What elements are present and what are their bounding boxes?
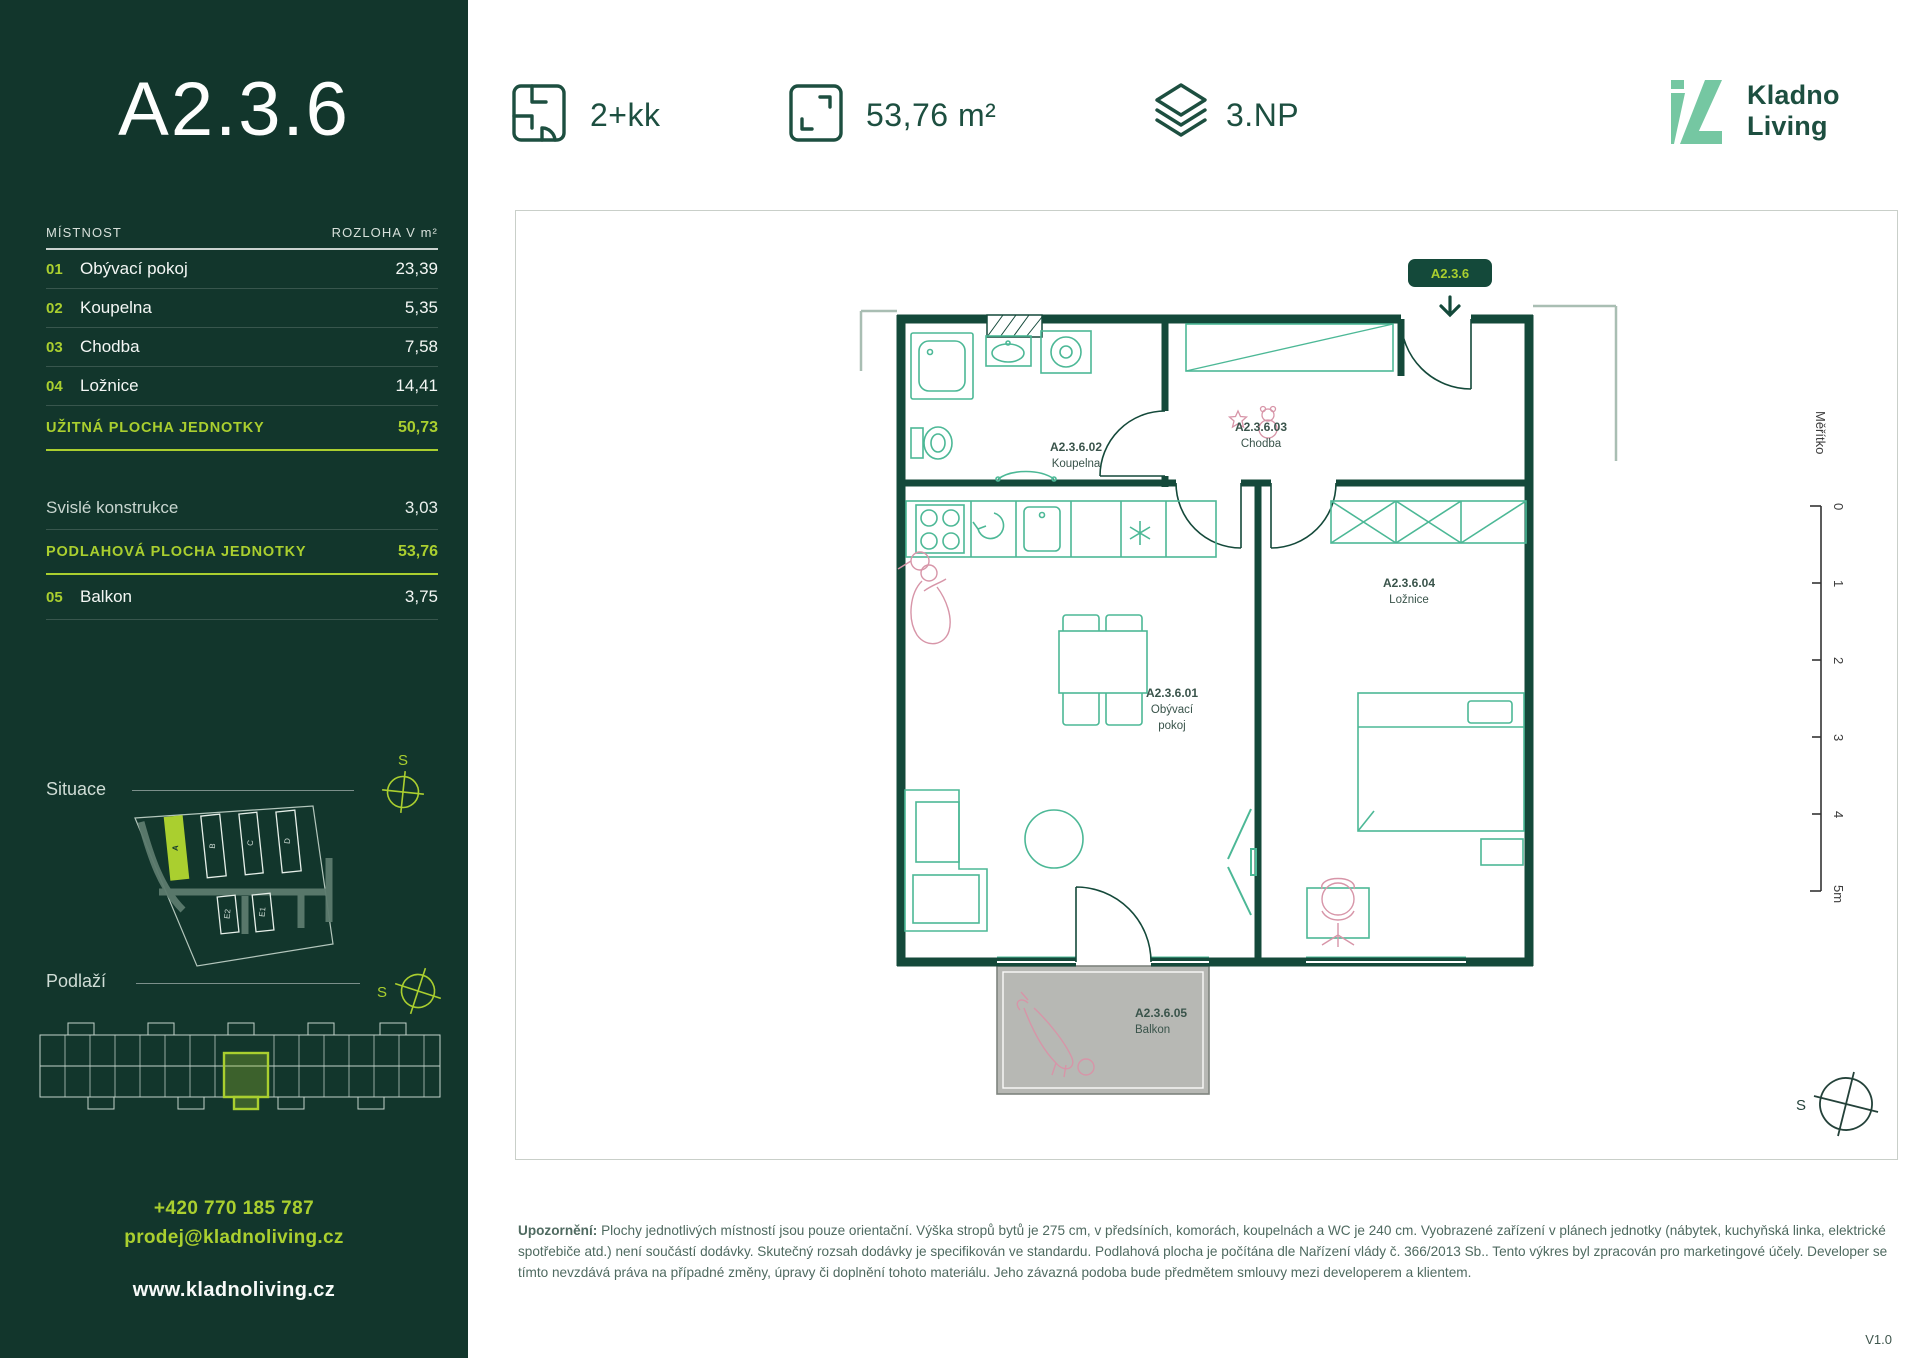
room-number: 04	[46, 378, 80, 395]
podlazi-divider	[136, 983, 360, 984]
svg-text:A2.3.6.05: A2.3.6.05	[1135, 1006, 1187, 1020]
room-table: MÍSTNOST ROZLOHA V m² 01 Obývací pokoj 2…	[46, 212, 438, 620]
svg-text:B: B	[208, 843, 218, 849]
room-table-header: MÍSTNOST ROZLOHA V m²	[46, 212, 438, 250]
usable-area-row: UŽITNÁ PLOCHA JEDNOTKY 50,73	[46, 406, 438, 451]
svg-text:E1: E1	[258, 906, 268, 917]
kitchen-counter	[906, 501, 1216, 557]
svg-text:A: A	[171, 844, 181, 851]
svg-text:C: C	[246, 839, 256, 846]
svg-text:E2: E2	[223, 908, 233, 919]
area-icon	[789, 84, 843, 142]
vertical-structures-value: 3,03	[405, 498, 438, 518]
svg-text:D: D	[283, 837, 293, 844]
sidebar: A2.3.6 MÍSTNOST ROZLOHA V m² 01 Obývací …	[0, 0, 468, 1358]
usable-area-label: UŽITNÁ PLOCHA JEDNOTKY	[46, 420, 398, 436]
svg-text:S: S	[1796, 1097, 1806, 1114]
room-number: 01	[46, 261, 80, 278]
balcony-area	[997, 966, 1209, 1094]
floor-icon	[1153, 82, 1209, 142]
room-name: Balkon	[80, 587, 405, 607]
svg-text:Balkon: Balkon	[1135, 1024, 1170, 1036]
situace-divider	[132, 790, 354, 791]
down-arrow-icon	[1441, 297, 1459, 315]
room-name: Koupelna	[80, 298, 405, 318]
floor-area-label: PODLAHOVÁ PLOCHA JEDNOTKY	[46, 544, 398, 560]
svg-text:Chodba: Chodba	[1241, 438, 1282, 450]
svg-text:A2.3.6.04: A2.3.6.04	[1383, 576, 1435, 590]
vertical-structures-label: Svislé konstrukce	[46, 498, 405, 518]
svg-text:2: 2	[1831, 657, 1846, 664]
svg-text:5m: 5m	[1831, 885, 1846, 903]
shaft-hatch	[987, 315, 1042, 337]
room-name: Obývací pokoj	[80, 259, 395, 279]
floor-plan-panel: A2.3.6.02 Koupelna A2.3.6.03 Chodba A2.3…	[515, 210, 1898, 1160]
desk-and-chair	[1307, 879, 1369, 948]
area-label: 53,76 m²	[866, 97, 996, 134]
neighbor-walls	[861, 306, 1616, 461]
floor-area-value: 53,76	[398, 543, 438, 561]
vertical-structures-row: Svislé konstrukce 3,03	[46, 487, 438, 530]
table-row: 01 Obývací pokoj 23,39	[46, 250, 438, 289]
usable-area-value: 50,73	[398, 419, 438, 437]
person-sketch	[898, 552, 950, 644]
room-name: Chodba	[80, 337, 405, 357]
room-area: 14,41	[395, 376, 438, 396]
svg-text:0: 0	[1831, 503, 1846, 510]
svg-text:Měřítko: Měřítko	[1813, 411, 1828, 454]
col-room-header: MÍSTNOST	[46, 225, 122, 240]
bed	[1358, 693, 1524, 865]
room-area: 23,39	[395, 259, 438, 279]
kladno-living-logo-icon	[1669, 80, 1725, 144]
room-number: 05	[46, 589, 80, 606]
svg-text:3: 3	[1831, 734, 1846, 741]
balcony-row: 05 Balkon 3,75	[46, 575, 438, 620]
hall-wardrobe	[1186, 324, 1393, 371]
highlighted-unit	[224, 1053, 268, 1097]
floor-plan-drawing: A2.3.6.02 Koupelna A2.3.6.03 Chodba A2.3…	[516, 211, 1899, 1161]
room-number: 03	[46, 339, 80, 356]
podlazi-heading: Podlaží	[46, 971, 106, 992]
podlazi-floor-diagram	[28, 1005, 458, 1140]
svg-text:A2.3.6: A2.3.6	[1431, 266, 1469, 281]
floor-label: 3.NP	[1226, 97, 1299, 134]
col-area-header: ROZLOHA V m²	[332, 225, 438, 240]
plan-compass-icon: S	[1796, 1064, 1886, 1144]
living-furniture	[905, 790, 1083, 931]
bedroom-wardrobe	[1331, 501, 1526, 543]
exterior-walls	[897, 315, 1533, 966]
svg-text:4: 4	[1831, 811, 1846, 818]
contact-block: +420 770 185 787 prodej@kladnoliving.cz …	[0, 1198, 468, 1302]
table-row: 02 Koupelna 5,35	[46, 289, 438, 328]
room-area: 7,58	[405, 337, 438, 357]
svg-text:Ložnice: Ložnice	[1389, 594, 1429, 606]
interior-walls	[897, 319, 1529, 962]
disclaimer-text: Upozornění: Plochy jednotlivých místnost…	[518, 1220, 1890, 1283]
table-row: 04 Ložnice 14,41	[46, 367, 438, 406]
floor-area-row: PODLAHOVÁ PLOCHA JEDNOTKY 53,76	[46, 530, 438, 575]
svg-text:A2.3.6.01: A2.3.6.01	[1146, 686, 1198, 700]
svg-text:1: 1	[1831, 580, 1846, 587]
svg-text:pokoj: pokoj	[1158, 720, 1186, 732]
svg-text:A2.3.6.03: A2.3.6.03	[1235, 420, 1287, 434]
room-number: 02	[46, 300, 80, 317]
layout-icon	[512, 84, 566, 142]
tv	[1228, 809, 1256, 915]
brand-name: Kladno Living	[1747, 80, 1840, 142]
room-area: 3,75	[405, 587, 438, 607]
scale-ruler: Měřítko 0 1 2 3 4 5m	[1810, 411, 1846, 903]
unit-chip: A2.3.6	[1408, 259, 1492, 315]
dining-set	[1059, 615, 1147, 725]
svg-text:A2.3.6.02: A2.3.6.02	[1050, 440, 1102, 454]
svg-text:Koupelna: Koupelna	[1052, 458, 1101, 470]
svg-text:S: S	[377, 984, 387, 1001]
room-area: 5,35	[405, 298, 438, 318]
website-link[interactable]: www.kladnoliving.cz	[0, 1279, 468, 1302]
layout-label: 2+kk	[590, 97, 660, 134]
situace-site-plan: A B C D E2 E1	[95, 800, 385, 978]
phone-link[interactable]: +420 770 185 787	[0, 1198, 468, 1220]
table-row: 03 Chodba 7,58	[46, 328, 438, 367]
svg-text:Obývací: Obývací	[1151, 704, 1194, 716]
svg-text:S: S	[398, 752, 408, 769]
version-label: V1.0	[1865, 1332, 1892, 1347]
unit-code-title: A2.3.6	[0, 66, 468, 153]
email-link[interactable]: prodej@kladnoliving.cz	[0, 1227, 468, 1249]
room-name: Ložnice	[80, 376, 395, 396]
situace-heading: Situace	[46, 779, 106, 800]
